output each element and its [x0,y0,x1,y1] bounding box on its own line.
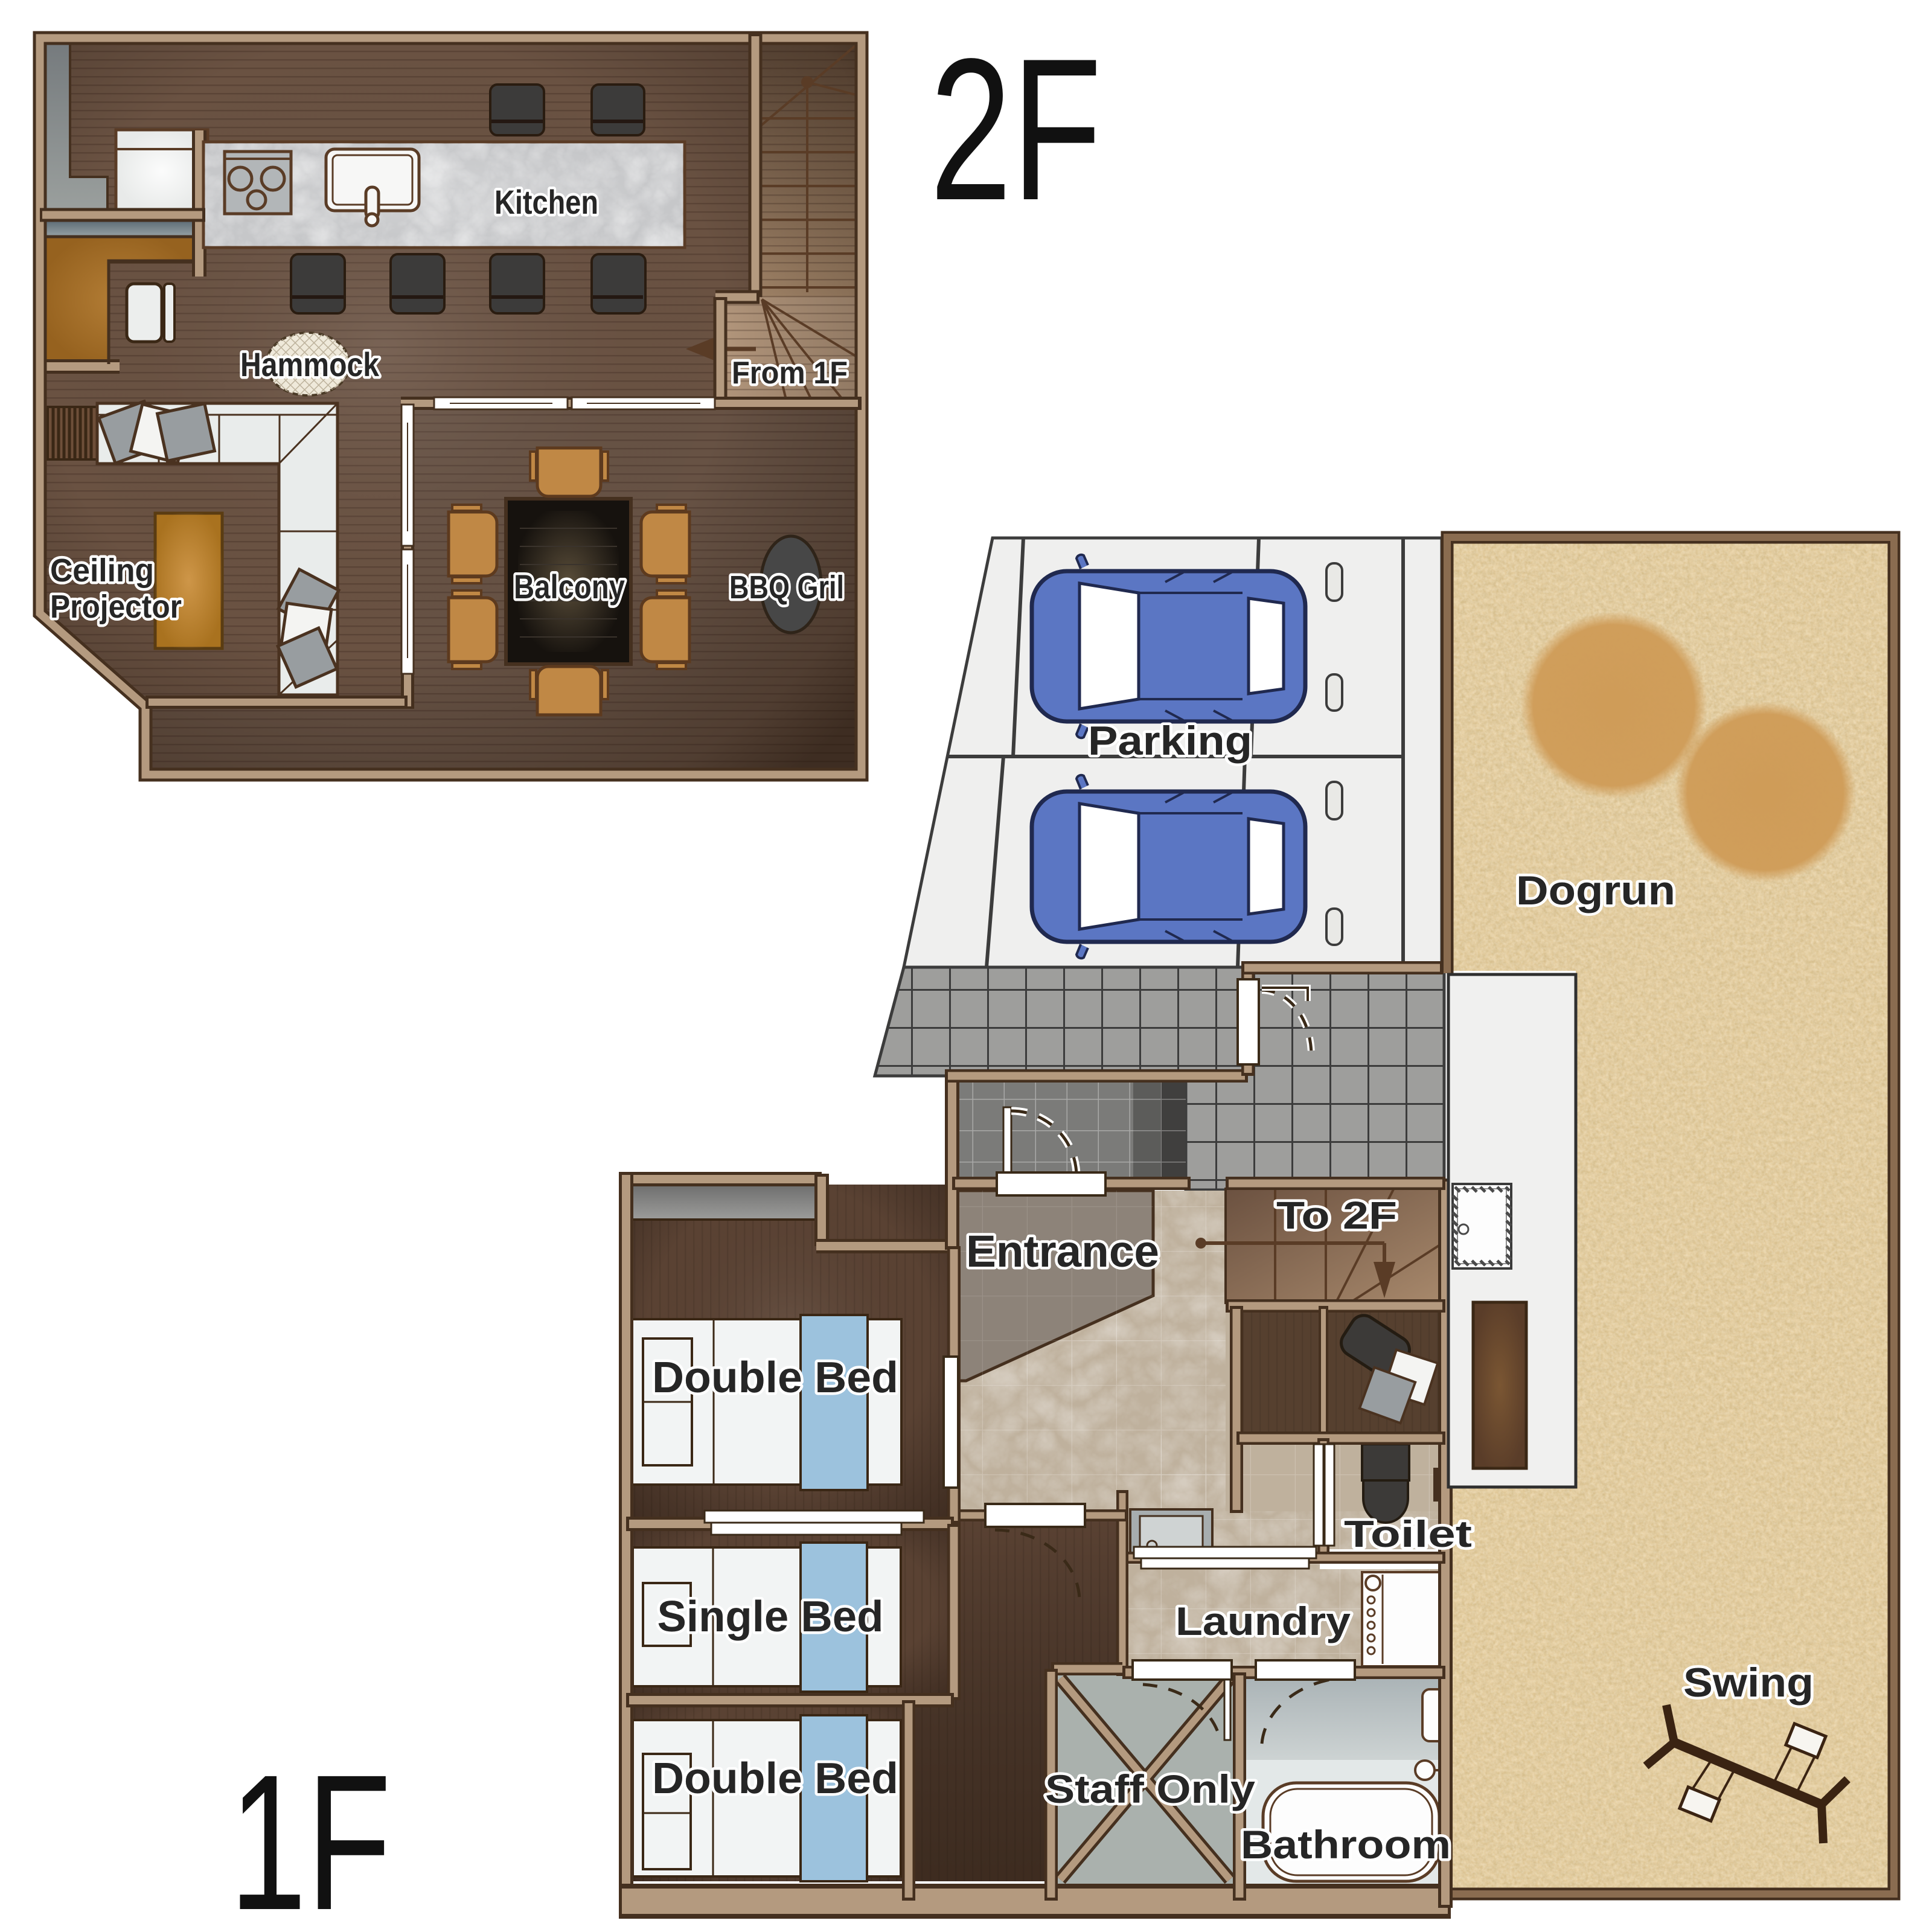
svg-text:Double Bed: Double Bed [652,1754,898,1803]
svg-text:Dogrun: Dogrun [1516,868,1675,913]
svg-text:Swing: Swing [1683,1660,1814,1706]
svg-text:Entrance: Entrance [966,1226,1159,1276]
svg-text:Projector: Projector [50,589,182,625]
svg-text:Balcony: Balcony [514,568,625,606]
svg-text:Toilet: Toilet [1344,1514,1472,1555]
svg-text:From 1F: From 1F [732,356,848,391]
svg-text:BBQ Gril: BBQ Gril [729,569,844,606]
svg-text:Laundry: Laundry [1176,1599,1351,1643]
svg-text:Parking: Parking [1088,718,1252,764]
svg-text:2F: 2F [930,16,1102,242]
svg-text:To 2F: To 2F [1276,1194,1397,1237]
svg-text:Kitchen: Kitchen [494,183,598,221]
svg-text:Staff Only: Staff Only [1045,1767,1255,1811]
svg-text:Single Bed: Single Bed [657,1593,884,1641]
svg-text:1F: 1F [229,1734,391,1932]
svg-text:Ceiling: Ceiling [50,552,154,589]
svg-text:Bathroom: Bathroom [1241,1822,1451,1867]
svg-text:Double Bed: Double Bed [652,1354,898,1402]
svg-text:Hammock: Hammock [240,345,380,383]
